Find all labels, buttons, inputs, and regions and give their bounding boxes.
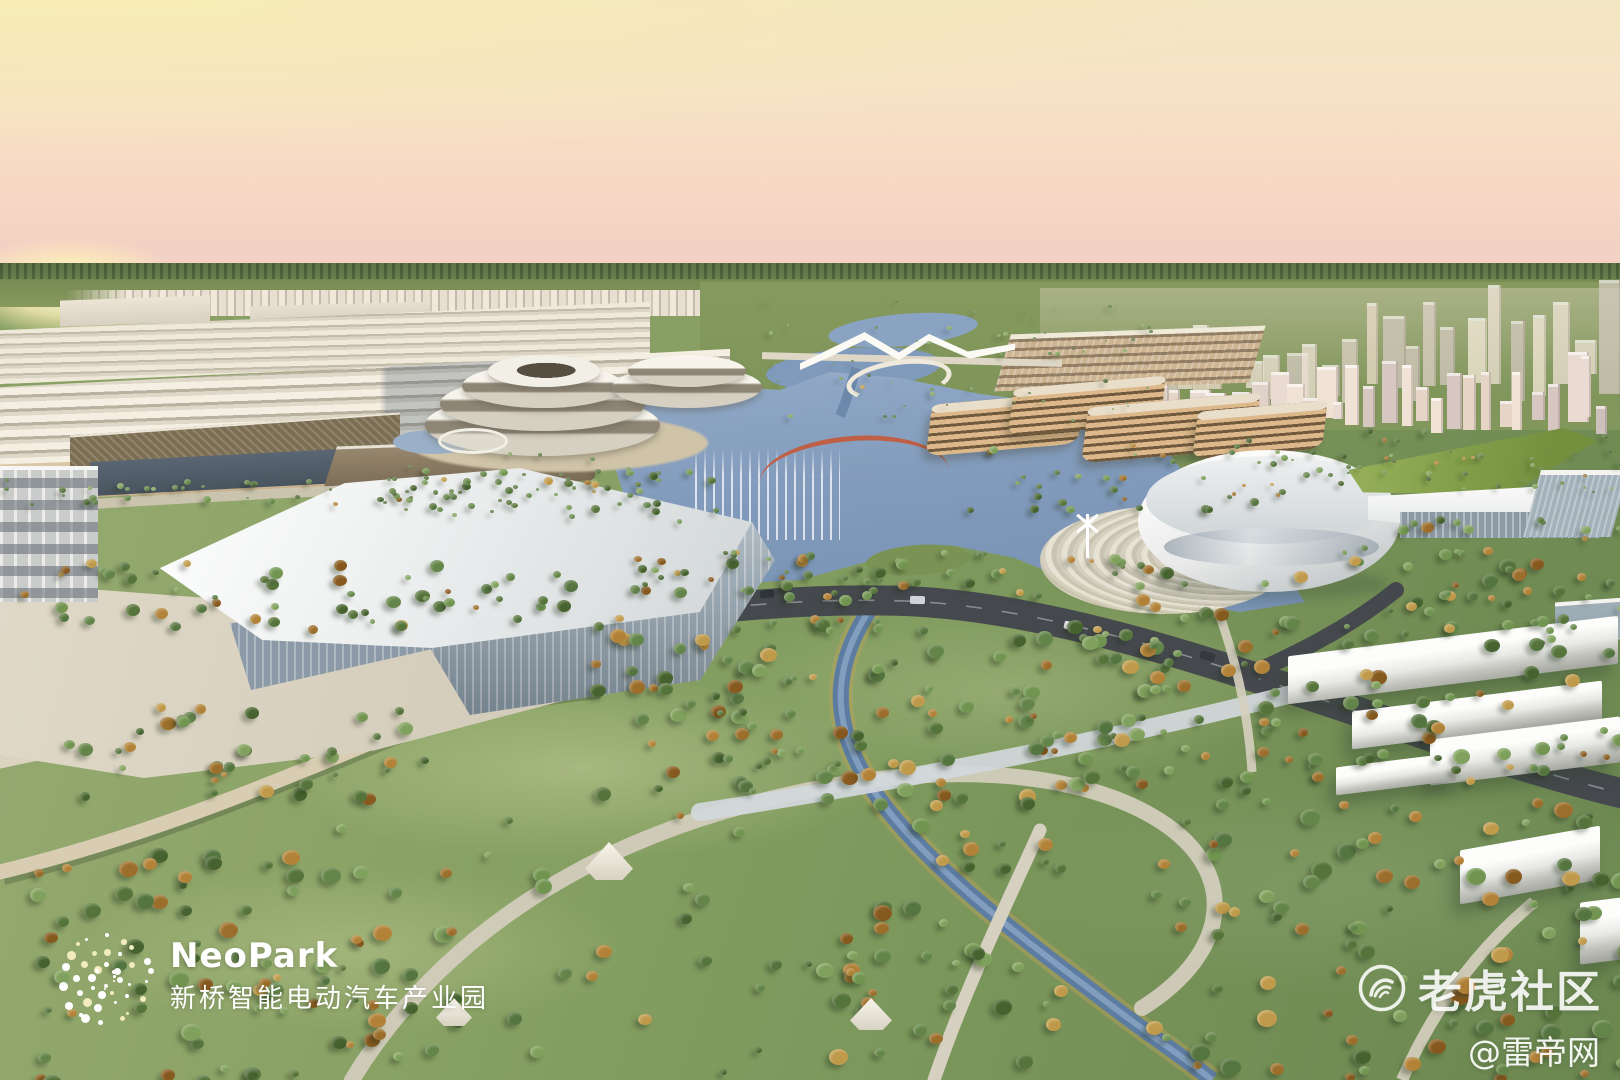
neopark-aerial-rendering: NeoPark 新桥智能电动汽车产业园 老虎社区 @雷帝网 xyxy=(0,0,1620,1080)
community-watermark: 老虎社区 xyxy=(1356,956,1602,1020)
logo-dot xyxy=(121,939,127,945)
logo-dot xyxy=(62,963,70,971)
community-watermark-label: 老虎社区 xyxy=(1418,956,1602,1020)
logo-dot xyxy=(129,945,134,950)
spiral-building-top xyxy=(488,355,600,387)
logo-dot xyxy=(95,969,99,973)
logo-dot xyxy=(120,1016,125,1021)
logo-dot xyxy=(104,988,106,990)
logo-dot xyxy=(113,980,115,982)
logo-dot xyxy=(145,980,148,983)
logo-dot xyxy=(79,1013,83,1017)
logo-dot xyxy=(104,962,109,967)
logo-dot xyxy=(104,984,108,988)
logo-dot xyxy=(105,933,109,937)
logo-dot xyxy=(76,942,80,946)
logo-dot xyxy=(98,991,106,999)
neopark-logo-subtitle: 新桥智能电动汽车产业园 xyxy=(170,978,489,1015)
logo-dot xyxy=(129,962,135,968)
logo-dot xyxy=(148,968,154,974)
round-pavilion xyxy=(438,428,508,454)
logo-dot xyxy=(126,1012,129,1015)
neopark-logo-text: NeoPark xyxy=(170,936,338,976)
logo-dot xyxy=(65,1002,73,1010)
logo-dot xyxy=(128,983,131,986)
logo-dot xyxy=(88,974,96,982)
plaza-sculpture xyxy=(1086,514,1089,558)
logo-dot xyxy=(118,952,122,956)
white-shed xyxy=(1580,897,1620,964)
logo-dot xyxy=(73,975,80,982)
logo-dot xyxy=(92,951,97,956)
canal-bank xyxy=(841,606,1212,1080)
tiger-circle-icon xyxy=(1356,962,1408,1014)
glass-hall xyxy=(1523,470,1620,537)
logo-dot xyxy=(110,991,114,995)
neopark-logo-mark-dots xyxy=(55,925,155,1035)
grid-facade-building xyxy=(0,466,98,602)
logo-dot xyxy=(85,938,88,941)
logo-dot xyxy=(81,961,88,968)
logo-dot xyxy=(77,990,83,996)
logo-dot xyxy=(125,994,129,998)
logo-dot xyxy=(91,986,95,990)
logo-dot xyxy=(59,982,68,991)
park-loop-path xyxy=(352,774,1215,1080)
logo-dot xyxy=(112,970,116,974)
canal xyxy=(841,606,1212,1080)
logo-dot xyxy=(114,1001,117,1004)
credit-watermark: @雷帝网 xyxy=(1468,1026,1600,1074)
spiral-building-2-top xyxy=(628,355,746,387)
logo-dot xyxy=(117,977,123,983)
logo-dot xyxy=(104,949,111,956)
logo-dot xyxy=(113,975,116,978)
logo-dot xyxy=(144,958,151,965)
logo-dot xyxy=(67,951,76,960)
canal-highlight xyxy=(841,606,1212,1080)
logo-dot xyxy=(98,1020,103,1025)
logo-dot xyxy=(140,996,146,1002)
logo-dot xyxy=(94,1004,102,1012)
logo-dot xyxy=(83,998,92,1007)
